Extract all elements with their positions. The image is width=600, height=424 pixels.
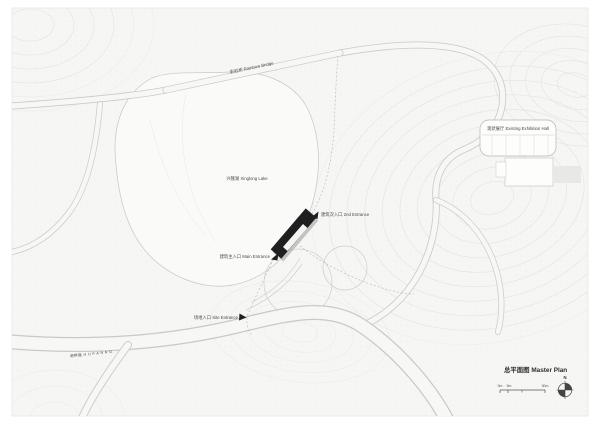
exhibition-hall-annex [505,158,553,186]
north-label: N [563,375,566,380]
second-entrance-label: 建筑次入口 2nd Entrance [321,211,370,218]
main-entrance-label: 建筑主入口 Main Entrance [220,253,271,260]
scale-tick-1: 5m [507,384,512,388]
scale-tick-0: 0m [498,384,503,388]
exhibition-hall-annex-small [496,162,506,177]
master-plan-drawing: 彩虹桥 Rainbow Bridge 现状展厅 Existing Exhibit… [0,0,600,424]
scale-tick-2: 30m [542,384,549,388]
exhibition-hall-label: 现状展厅 Existing Exhibition Hall [487,125,549,132]
exhibition-hall-slab [553,166,581,183]
site-plan-svg: 彩虹桥 Rainbow Bridge 现状展厅 Existing Exhibit… [0,0,600,424]
lake-label: 兴隆湖 Xinglong Lake [226,175,268,182]
site-entrance-label: 场地入口 Site Entrance [194,314,239,321]
plan-title: 总平面图 Master Plan [504,365,567,374]
